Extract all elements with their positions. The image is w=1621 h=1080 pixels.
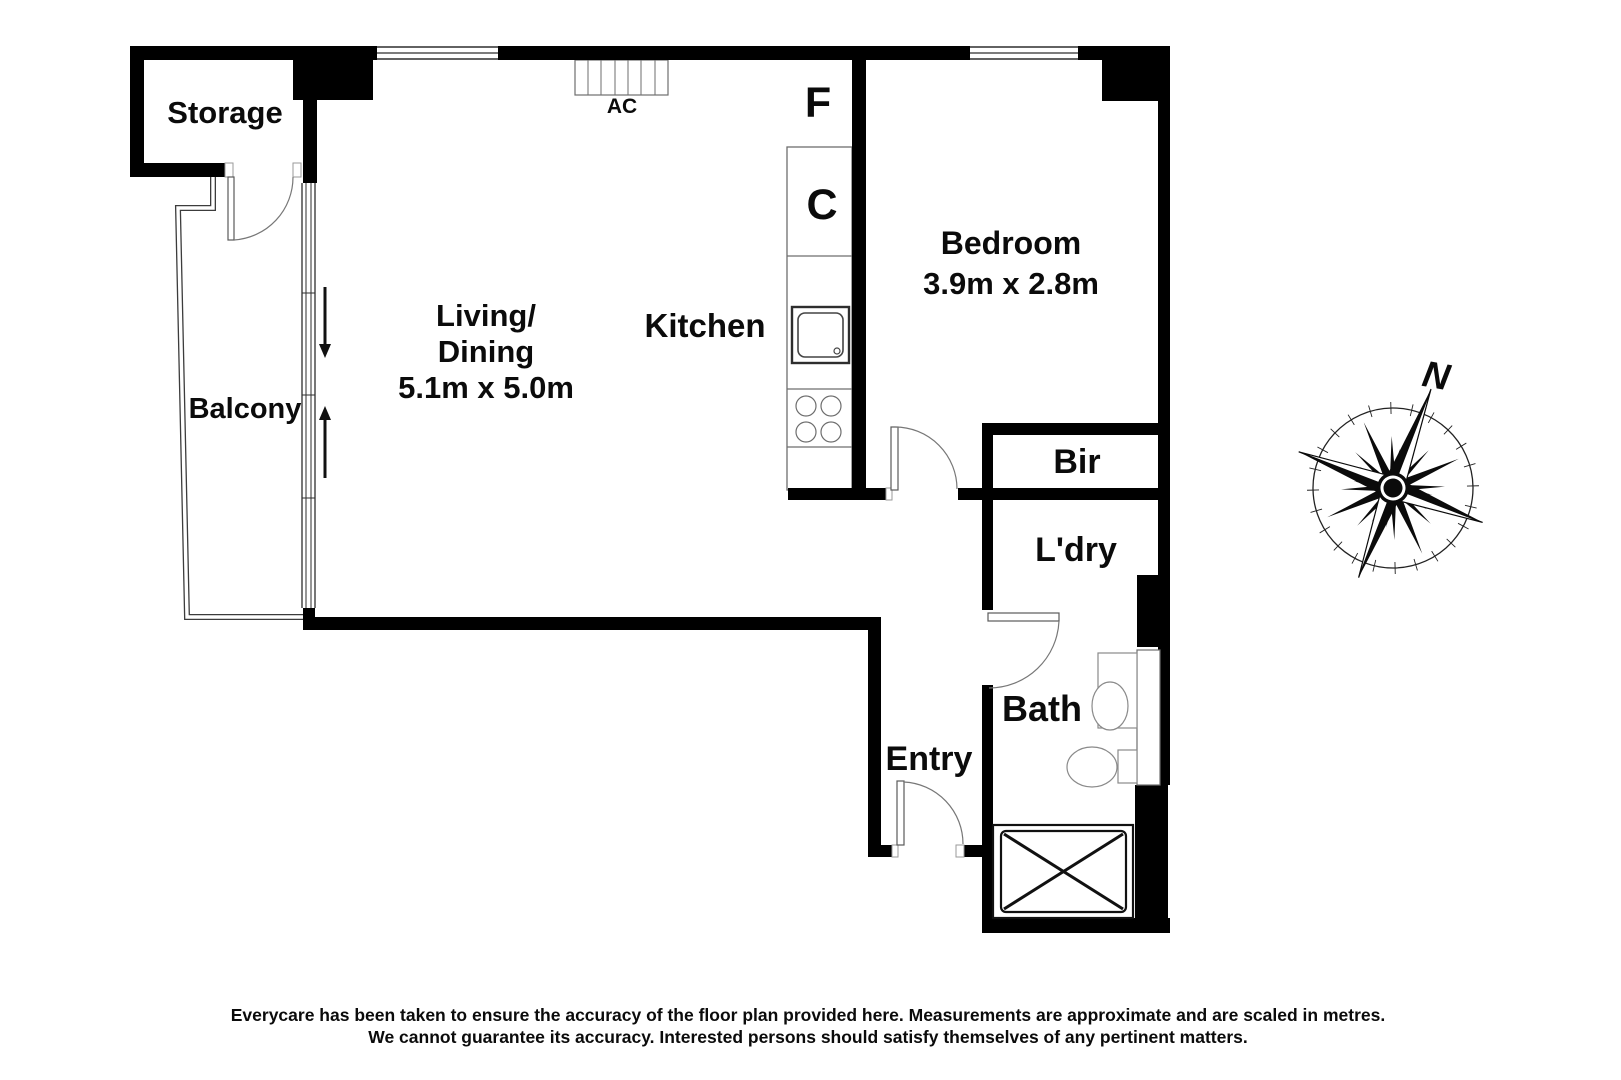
wall-kitchen-bottom [788, 488, 887, 500]
wall-bir-stub [982, 435, 993, 488]
label-bir: Bir [1053, 443, 1100, 481]
label-fridge: F [805, 79, 831, 127]
basin [1092, 653, 1137, 730]
ac-unit [575, 60, 668, 95]
floorplan-canvas: N Storage Balcony Living/ Dining 5.1m x … [0, 0, 1621, 1080]
slide-arrows [319, 287, 331, 478]
wall-top-left [130, 46, 377, 60]
wall-bir-bottom [958, 488, 1158, 500]
walls [130, 46, 1170, 933]
disclaimer-line-1: Everycare has been taken to ensure the a… [231, 1005, 1385, 1025]
wall-bottom [982, 918, 1170, 933]
wall-entry-stub-right [963, 845, 993, 857]
balcony-sliding-door [302, 183, 315, 608]
wall-storage-bottom [130, 163, 230, 177]
wall-storage-right [303, 97, 317, 183]
bedroom-window [970, 46, 1078, 60]
label-ac: AC [607, 95, 637, 118]
shower [993, 825, 1133, 918]
label-bedroom: Bedroom [941, 225, 1081, 261]
wall-corridor-left [868, 617, 881, 847]
label-balcony: Balcony [189, 393, 302, 425]
disclaimer-line-2: We cannot guarantee its accuracy. Intere… [368, 1027, 1248, 1047]
wall-kitchen-partition [852, 60, 866, 490]
sink [792, 307, 849, 363]
bath-door [988, 613, 1059, 688]
vanity-counter [1137, 650, 1160, 785]
wall-living-bottom [303, 617, 880, 630]
wall-top-mid [498, 46, 970, 60]
wall-right-vanity-strip [1160, 650, 1170, 785]
wall-storage-chunk [293, 60, 373, 100]
label-cupboard: C [806, 181, 837, 229]
wall-right [1158, 60, 1170, 650]
wall-right-bottom-block [1135, 785, 1168, 933]
label-entry: Entry [886, 740, 973, 778]
room-labels: Storage Balcony Living/ Dining 5.1m x 5.… [167, 95, 1117, 778]
arrow-up-icon [319, 406, 331, 478]
label-living-dims: 5.1m x 5.0m [398, 370, 574, 405]
wall-storage-left [130, 46, 144, 177]
arrow-down-icon [319, 287, 331, 358]
storage-door [225, 163, 301, 240]
label-living-2: Dining [438, 334, 534, 369]
wall-bedroom-bottom [982, 423, 1170, 435]
label-living-1: Living/ [436, 298, 536, 333]
toilet [1067, 747, 1137, 787]
label-bedroom-dims: 3.9m x 2.8m [923, 266, 1099, 301]
bedroom-door [886, 427, 957, 500]
wall-top-right [1078, 46, 1170, 60]
compass-rose: N [1264, 353, 1520, 612]
entry-door [892, 781, 964, 857]
living-window [377, 46, 498, 60]
label-kitchen: Kitchen [644, 307, 765, 344]
wall-bedroom-corner-block [1102, 60, 1160, 101]
compass-north-label: N [1419, 353, 1454, 398]
label-storage: Storage [167, 95, 282, 130]
wall-corridor-right-lower [982, 685, 993, 918]
label-bath: Bath [1002, 688, 1082, 729]
wall-corridor-right-upper [982, 500, 993, 610]
wall-duct-block [1137, 575, 1158, 647]
wall-track-stub [303, 608, 315, 630]
floorplan-drawing: N Storage Balcony Living/ Dining 5.1m x … [0, 0, 1621, 1080]
label-laundry: L'dry [1035, 531, 1117, 569]
disclaimer: Everycare has been taken to ensure the a… [231, 1005, 1385, 1047]
